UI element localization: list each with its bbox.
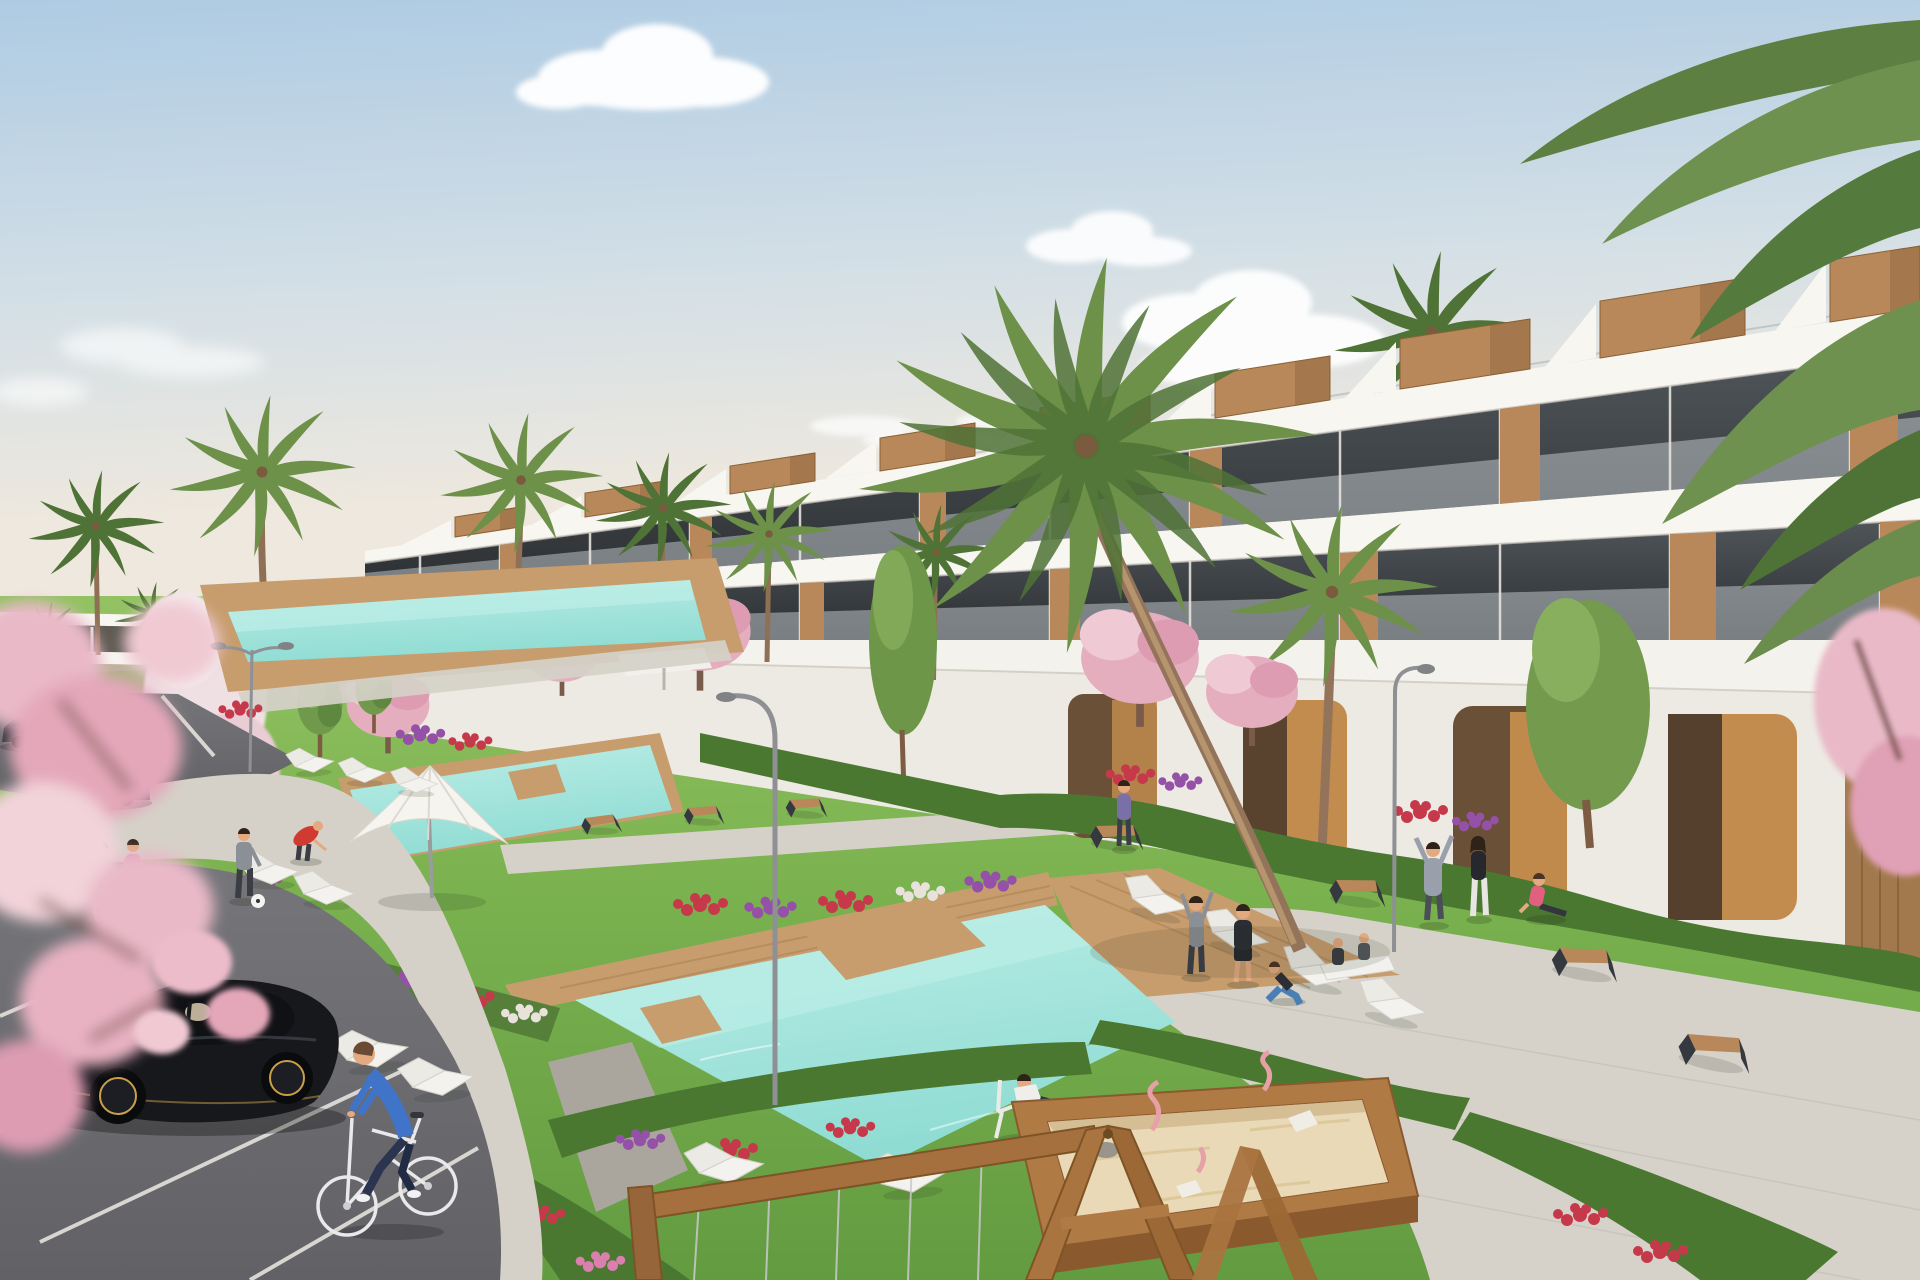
render-canvas [0,0,1920,1280]
apartment-complex-render [0,0,1920,1280]
